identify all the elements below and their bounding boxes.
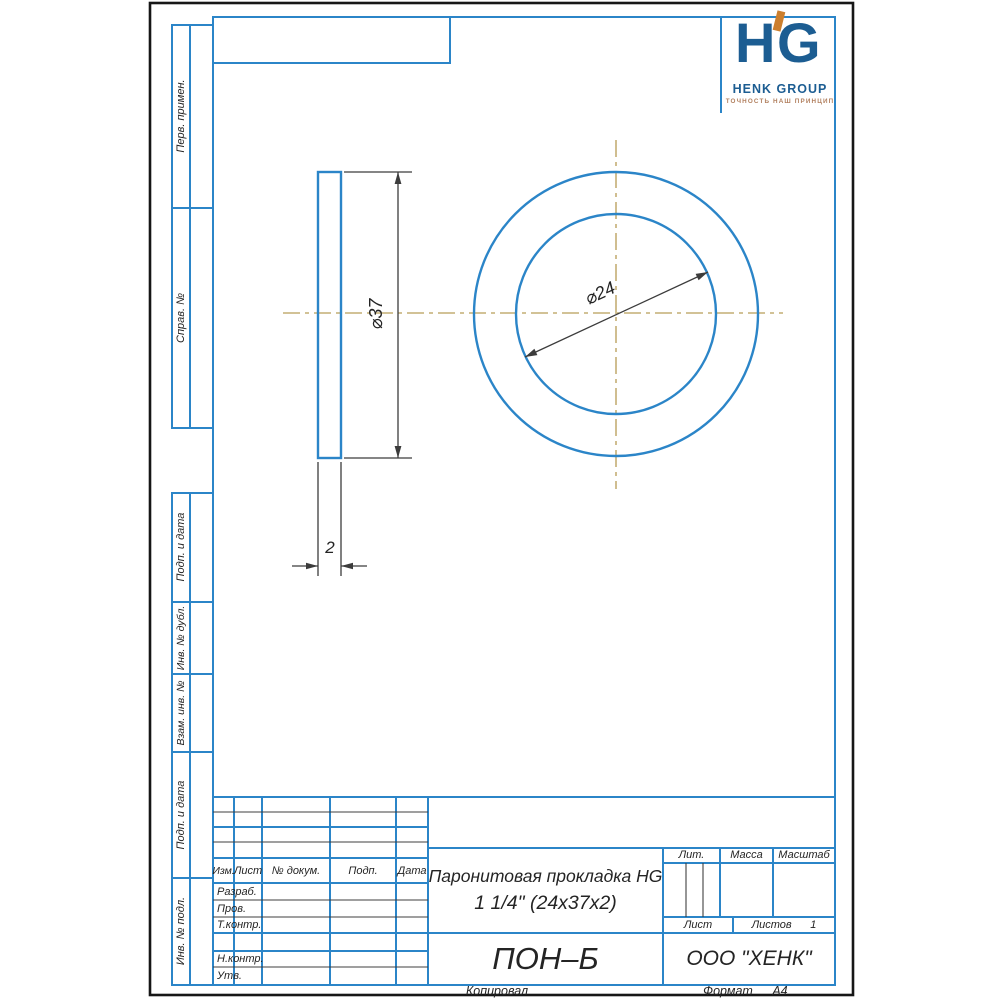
sidebar-label-inv-no-dubl: Инв. № дубл.: [172, 603, 190, 673]
row-n-kontr: Н.контр.: [213, 951, 283, 967]
col-izm: Изм.: [213, 858, 234, 883]
logo-letter-g: G: [777, 8, 821, 78]
row-razrab: Разраб.: [213, 883, 283, 900]
row-prov: Пров.: [213, 900, 283, 917]
copied-label: Копировал: [447, 984, 547, 997]
logo-letter-h: H: [735, 8, 775, 78]
sheets-value: 1: [810, 919, 816, 931]
doc-title: Паронитовая прокладка НG 1 1/4" (24х37х2…: [430, 850, 661, 931]
sidebar-label-podp-i-data-2: Подп. и дата: [172, 754, 190, 876]
logo-tagline: ТОЧНОСТЬ НАШ ПРИНЦИП: [726, 97, 834, 106]
sheets-cell: Листов 1: [733, 917, 835, 933]
dim-thickness-label: 2: [315, 537, 345, 559]
logo-company-name: HENK GROUP: [731, 82, 829, 95]
row-t-kontr: Т.контр.: [213, 917, 283, 933]
col-podp: Подп.: [330, 858, 396, 883]
drawing-sheet: H G HENK GROUP ТОЧНОСТЬ НАШ ПРИНЦИП Перв…: [0, 0, 1000, 1000]
sidebar-label-sprav-no: Справ. №: [172, 210, 190, 426]
sidebar-label-podp-i-data-1: Подп. и дата: [172, 494, 190, 600]
format-value: А4: [765, 984, 795, 997]
sidebar-label-perv-primen: Перв. примен.: [172, 26, 190, 206]
company-name: ООО "ХЕНК": [663, 933, 835, 985]
sheets-label: Листов: [752, 919, 792, 931]
henk-group-logo: H G: [733, 8, 829, 84]
scale-label: Масштаб: [773, 847, 835, 863]
doc-title-line2: 1 1/4" (24х37х2): [474, 889, 616, 917]
col-no-dokum: № докум.: [262, 858, 330, 883]
col-data: Дата: [396, 858, 428, 883]
dim-outer-diameter-label: ⌀37: [365, 284, 387, 344]
col-list: Лист: [234, 858, 262, 883]
row-utv: Утв.: [213, 967, 283, 985]
mass-label: Масса: [720, 847, 773, 863]
format-label: Формат: [688, 984, 768, 997]
doc-title-line1: Паронитовая прокладка НG: [429, 864, 663, 889]
lit-label: Лит.: [663, 847, 720, 863]
designation: ПОН–Б: [428, 933, 663, 985]
sidebar-label-vzam-inv-no: Взам. инв. №: [172, 675, 190, 751]
sheet-label: Лист: [663, 917, 733, 933]
sidebar-label-inv-no-podl: Инв. № подл.: [172, 879, 190, 983]
